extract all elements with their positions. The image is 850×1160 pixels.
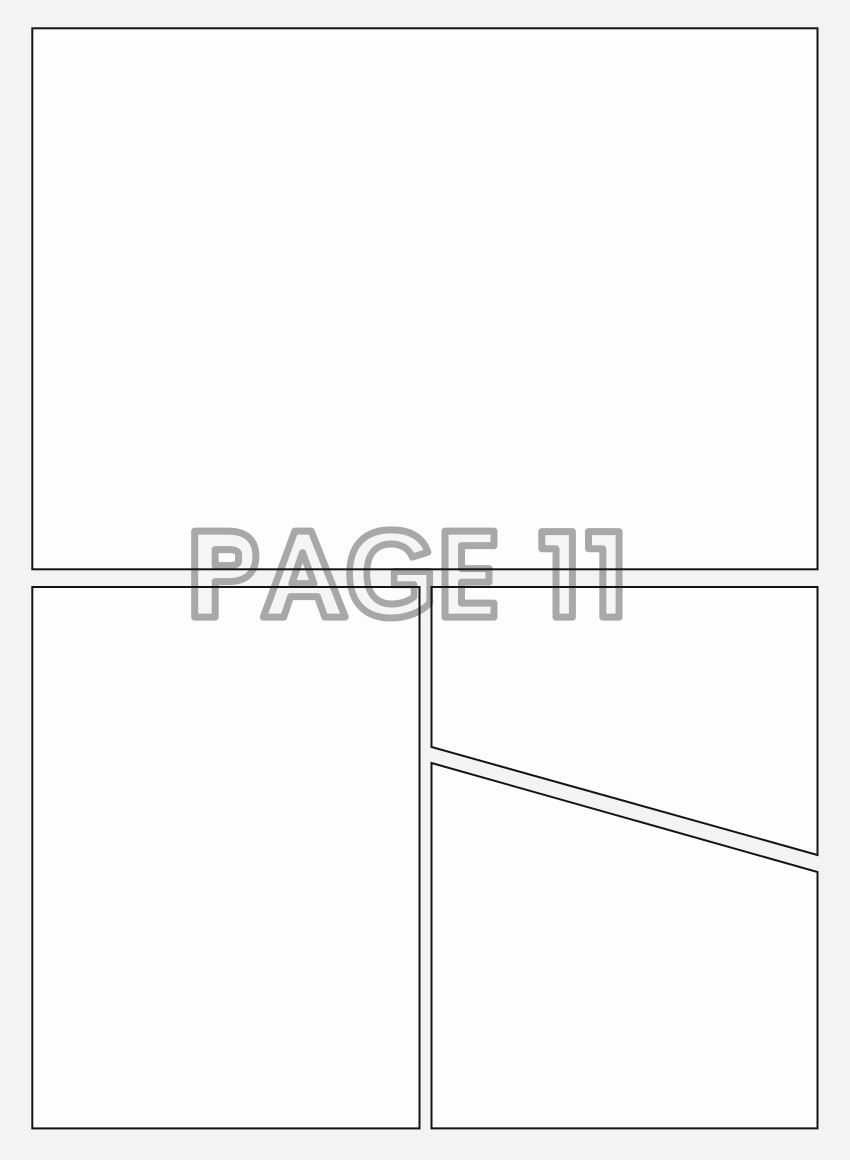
svg-text:G: G xyxy=(345,504,437,643)
